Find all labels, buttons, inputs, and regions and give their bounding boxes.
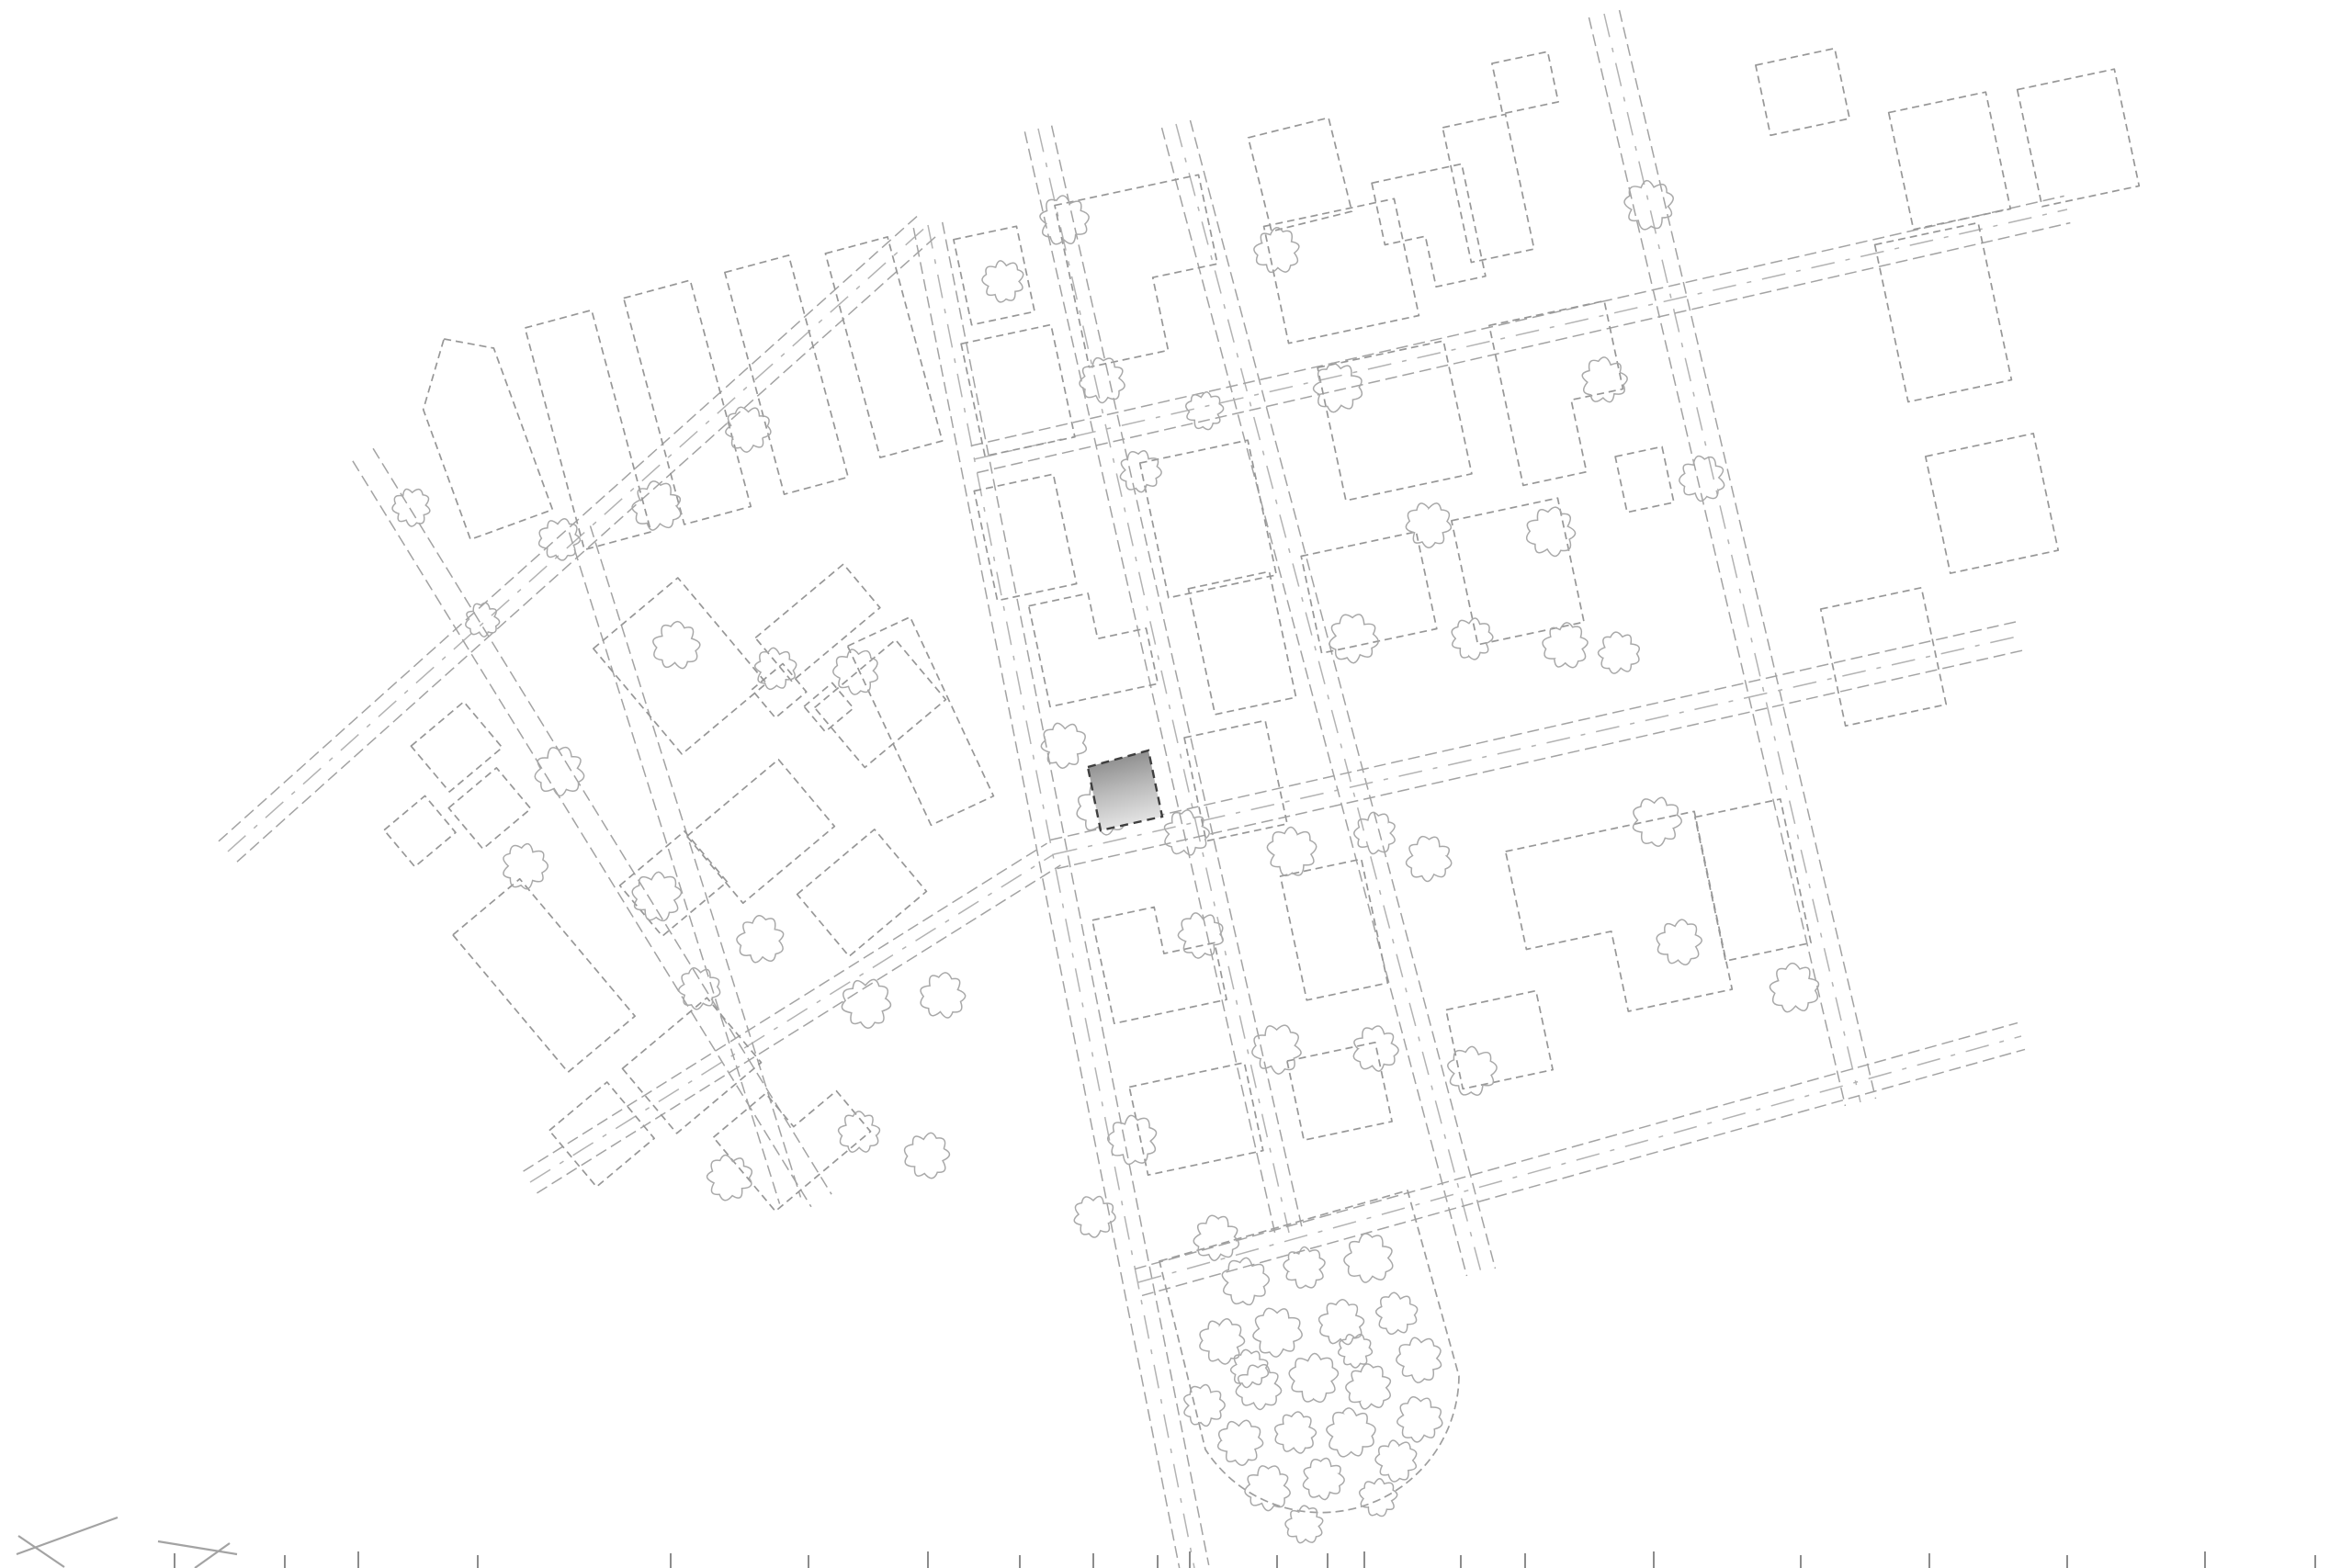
paper-background (0, 0, 2352, 1568)
site-plan-page (0, 0, 2352, 1568)
site-plan-drawing (0, 0, 2352, 1568)
